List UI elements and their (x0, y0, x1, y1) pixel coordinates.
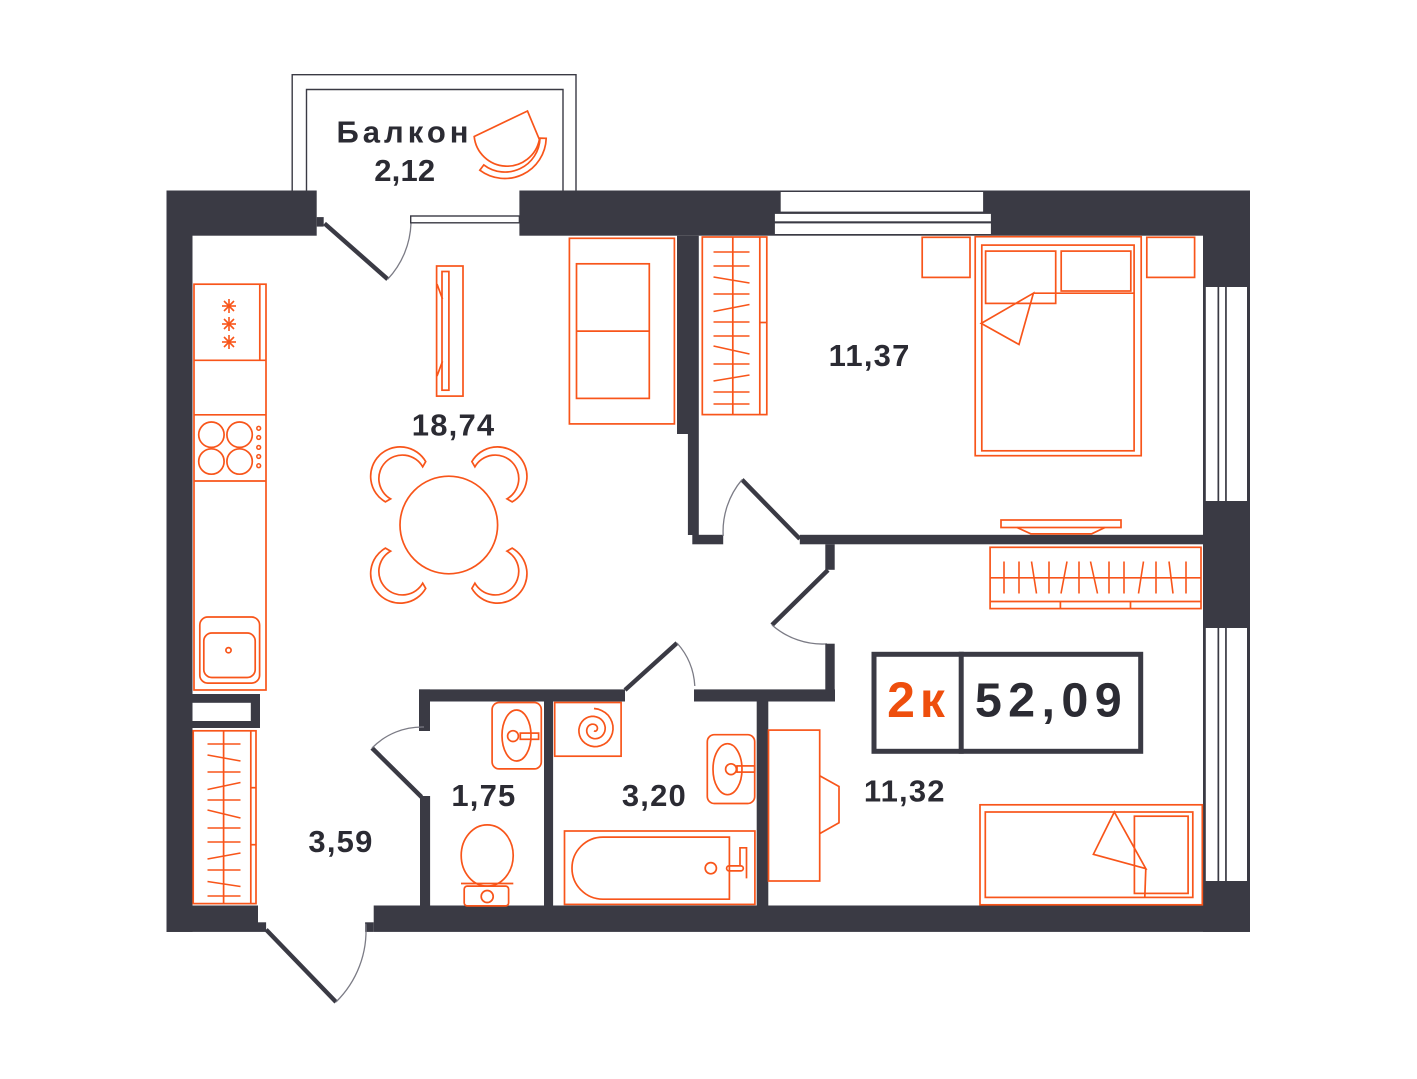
svg-text:3,59: 3,59 (308, 824, 373, 859)
svg-text:Балкон: Балкон (337, 115, 473, 150)
svg-text:2,12: 2,12 (374, 153, 435, 188)
svg-text:18,74: 18,74 (412, 408, 496, 443)
svg-text:52,09: 52,09 (975, 674, 1128, 728)
svg-text:11,37: 11,37 (829, 338, 911, 373)
svg-text:3,20: 3,20 (622, 778, 687, 813)
svg-text:2к: 2к (887, 672, 950, 728)
svg-text:11,32: 11,32 (864, 773, 946, 808)
svg-text:1,75: 1,75 (451, 778, 516, 813)
